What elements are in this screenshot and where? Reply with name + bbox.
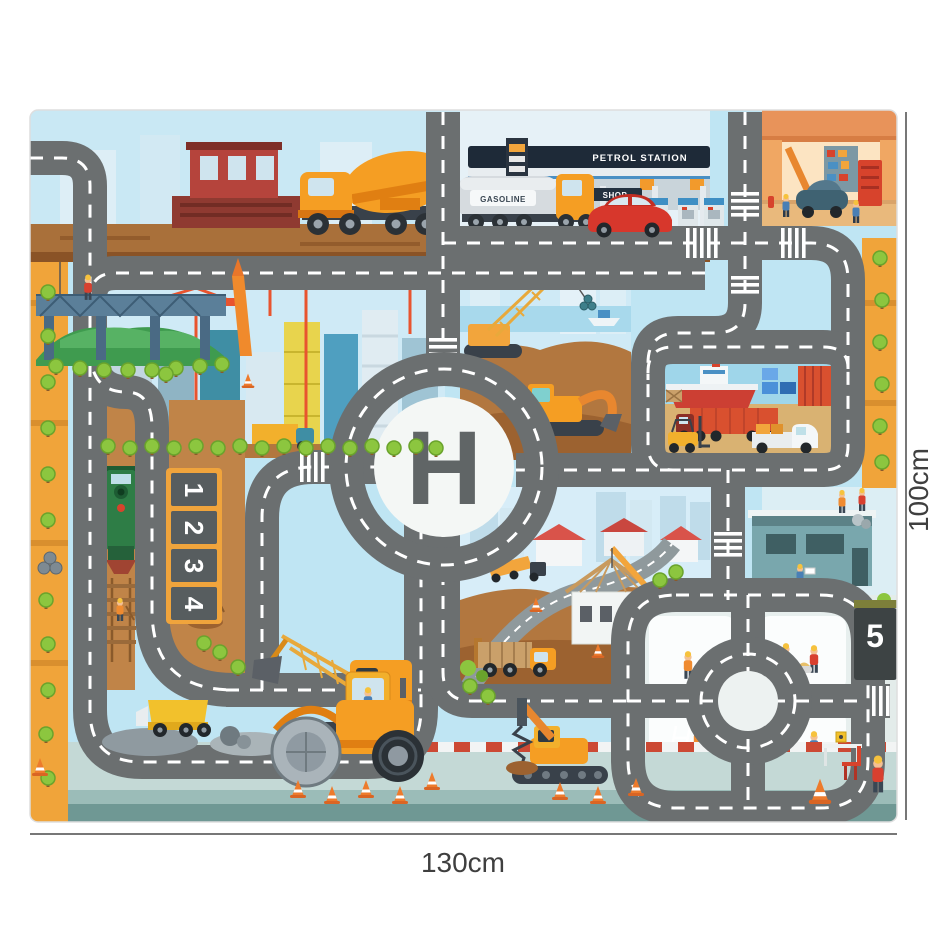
wooden-crates bbox=[666, 390, 682, 402]
parking-spot-1: 1 bbox=[179, 483, 209, 497]
product-photo-playmat: PETROL STATION SHOP GASOLINE bbox=[0, 0, 950, 950]
helipad: H bbox=[346, 369, 542, 565]
parking-spot-2: 2 bbox=[179, 521, 209, 535]
petrol-station-sign-text: PETROL STATION bbox=[592, 153, 687, 164]
width-label: 130cm bbox=[421, 847, 505, 878]
gasoline-label: GASOLINE bbox=[480, 195, 526, 204]
parking-spot-5-panel: 5 bbox=[854, 600, 897, 680]
garage-scene bbox=[762, 110, 897, 226]
parking-spot-3: 3 bbox=[179, 559, 209, 573]
helipad-letter: H bbox=[406, 410, 482, 527]
fire-extinguisher bbox=[768, 196, 774, 208]
petrol-station-scene: PETROL STATION SHOP GASOLINE bbox=[456, 110, 724, 230]
gasoline-tanker-truck: GASOLINE bbox=[456, 174, 594, 230]
roundabout-island bbox=[718, 671, 778, 731]
height-label: 100cm bbox=[903, 448, 934, 532]
parking-spots: 1 2 3 4 bbox=[166, 468, 222, 624]
locomotive bbox=[104, 466, 138, 574]
port-scene bbox=[665, 358, 832, 454]
parking-spot-5: 5 bbox=[866, 618, 884, 654]
blueprint bbox=[805, 568, 815, 574]
playmat-illustration: PETROL STATION SHOP GASOLINE bbox=[0, 0, 950, 950]
right-border-strip bbox=[862, 238, 897, 488]
parking-spot-4: 4 bbox=[179, 597, 209, 612]
